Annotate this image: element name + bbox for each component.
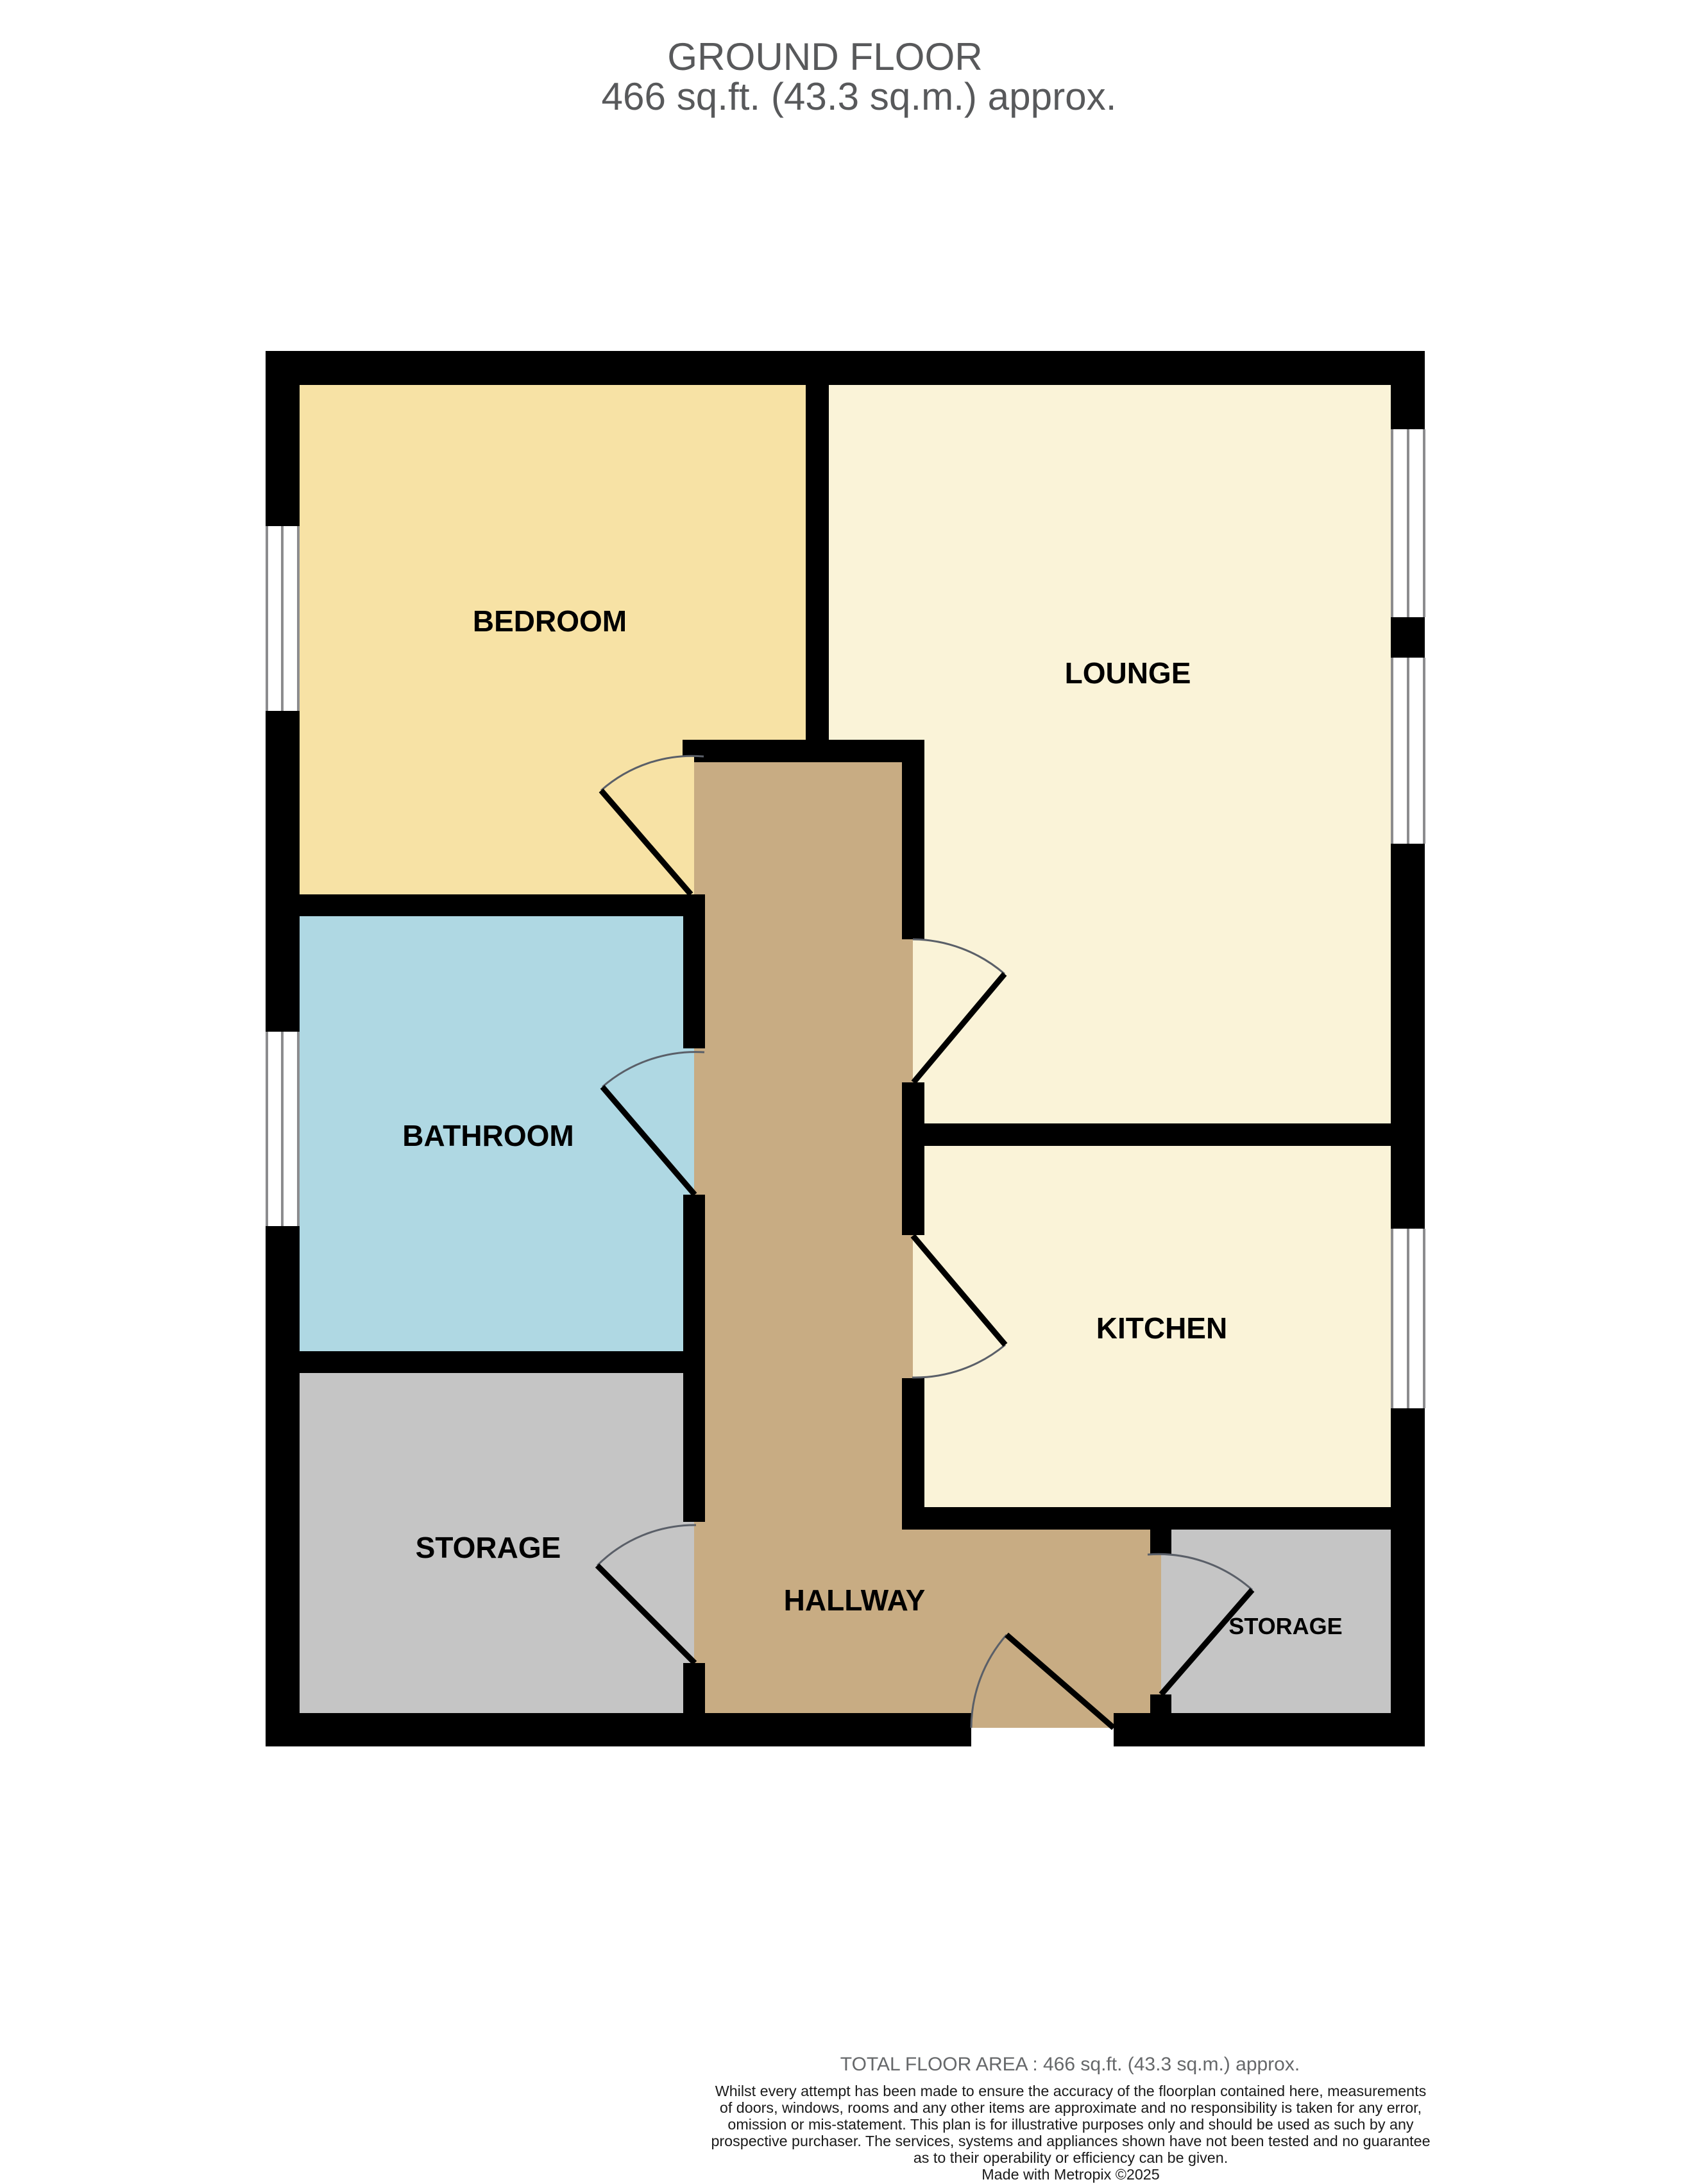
svg-text:GROUND FLOOR: GROUND FLOOR [667, 35, 983, 78]
svg-text:STORAGE: STORAGE [1228, 1613, 1342, 1639]
svg-text:of doors, windows, rooms and a: of doors, windows, rooms and any other i… [720, 2099, 1422, 2116]
svg-text:STORAGE: STORAGE [416, 1531, 561, 1564]
svg-text:BEDROOM: BEDROOM [473, 604, 627, 638]
svg-text:as to their operability or eff: as to their operability or efficiency ca… [913, 2149, 1228, 2166]
svg-text:omission or mis-statement. Thi: omission or mis-statement. This plan is … [727, 2116, 1414, 2133]
svg-text:Made with Metropix ©2025: Made with Metropix ©2025 [981, 2166, 1159, 2183]
svg-text:BATHROOM: BATHROOM [402, 1119, 574, 1152]
svg-text:466 sq.ft. (43.3 sq.m.) approx: 466 sq.ft. (43.3 sq.m.) approx. [602, 75, 1117, 118]
svg-text:LOUNGE: LOUNGE [1065, 656, 1191, 690]
svg-text:Whilst every attempt has been: Whilst every attempt has been made to en… [715, 2083, 1427, 2099]
svg-text:TOTAL FLOOR AREA : 466 sq.ft.: TOTAL FLOOR AREA : 466 sq.ft. (43.3 sq.m… [840, 2054, 1300, 2075]
svg-text:KITCHEN: KITCHEN [1096, 1311, 1227, 1345]
svg-text:HALLWAY: HALLWAY [784, 1583, 926, 1617]
svg-text:prospective purchaser. The ser: prospective purchaser. The services, sys… [711, 2133, 1430, 2149]
